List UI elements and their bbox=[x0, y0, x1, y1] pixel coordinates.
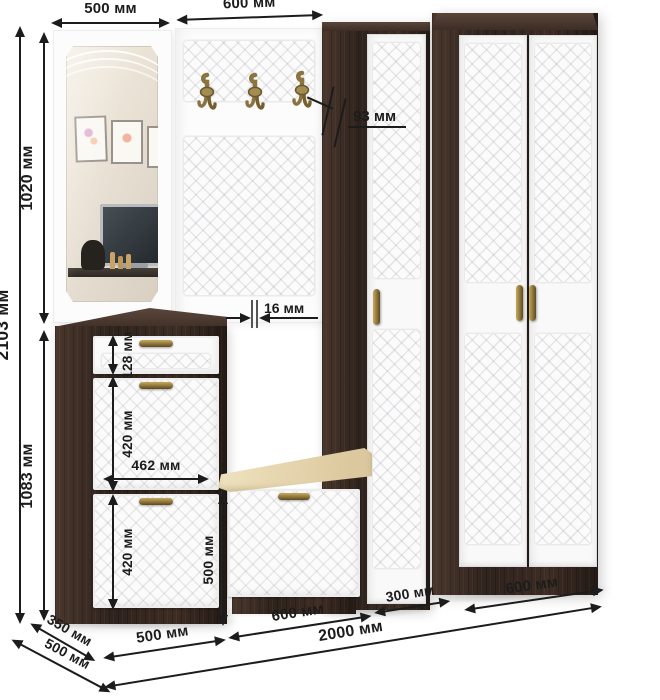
dimension-arrow bbox=[107, 495, 119, 609]
dimension-arrow bbox=[38, 331, 50, 620]
bench-height-dimension: 500 мм bbox=[217, 494, 229, 625]
cabinet-section-height-dimension: 1083 мм bbox=[38, 331, 50, 620]
drawer-handle bbox=[139, 340, 173, 347]
arrowhead-right bbox=[240, 313, 251, 323]
dimension-arrow bbox=[14, 27, 26, 623]
door-handle bbox=[516, 285, 523, 321]
double-wardrobe-top bbox=[432, 13, 598, 30]
dimension-label: 1083 мм bbox=[19, 443, 37, 508]
total-height-dimension: 2103 мм bbox=[14, 27, 26, 623]
dimension-label: 93 мм bbox=[353, 108, 396, 125]
dimension-arrow bbox=[177, 9, 322, 26]
dimension-label: 16 мм bbox=[264, 300, 304, 316]
mirror-sheen bbox=[66, 46, 158, 302]
flap-width-dimension: 462 мм bbox=[104, 458, 208, 485]
flap-handle bbox=[139, 498, 173, 505]
mirror-width-dimension: 500 мм bbox=[52, 1, 169, 29]
dimension-label: 420 мм bbox=[120, 528, 135, 575]
dimension-line bbox=[268, 317, 318, 319]
dimension-arrow bbox=[38, 33, 50, 323]
mirror bbox=[66, 46, 158, 302]
dimension-label: 2103 мм bbox=[0, 289, 13, 360]
drawer-height-dimension: 128 мм bbox=[107, 336, 119, 374]
door-handle bbox=[373, 289, 380, 325]
mirror-panel bbox=[53, 30, 172, 323]
door-quilt-panel bbox=[464, 333, 522, 545]
edge-hairline bbox=[256, 300, 258, 328]
bench-flap bbox=[228, 489, 360, 597]
flap-handle bbox=[139, 382, 173, 389]
double-wardrobe bbox=[432, 13, 598, 595]
hook-panel bbox=[175, 28, 323, 323]
leader-underline bbox=[348, 126, 406, 128]
dimension-arrow bbox=[217, 494, 229, 625]
dimension-label: 1020 мм bbox=[19, 145, 37, 210]
dimension-label: 420 мм bbox=[120, 410, 135, 457]
flap-handle bbox=[278, 493, 310, 500]
coat-hook bbox=[197, 72, 217, 122]
door-quilt-panel bbox=[464, 43, 522, 283]
dimension-arrow bbox=[104, 473, 208, 485]
bench bbox=[218, 446, 372, 616]
door-handle bbox=[529, 285, 536, 321]
dimension-label: 500 мм bbox=[84, 1, 137, 17]
hook-panel-lower-quilt bbox=[183, 136, 315, 296]
coat-hook bbox=[245, 72, 265, 122]
narrow-wardrobe-top bbox=[322, 22, 430, 31]
door-quilt-panel bbox=[534, 43, 592, 283]
wardrobe-door-right bbox=[529, 35, 597, 567]
dimension-arrow bbox=[52, 17, 169, 29]
coat-hook bbox=[292, 70, 312, 120]
furniture-dimension-diagram: 500 мм 600 мм 2103 мм 1020 мм 1083 мм 93… bbox=[0, 0, 660, 700]
dimension-label: 128 мм bbox=[120, 331, 135, 378]
door-quilt-panel bbox=[534, 333, 592, 545]
bench-cushion bbox=[218, 448, 372, 492]
dimension-arrow bbox=[107, 336, 119, 374]
dimension-label: 462 мм bbox=[131, 458, 180, 473]
lower-flap-height-dimension: 420 мм bbox=[107, 495, 119, 609]
hook-panel-width-dimension: 600 мм bbox=[177, 0, 323, 26]
dimension-label: 500 мм bbox=[200, 535, 216, 584]
door-quilt-panel bbox=[372, 329, 421, 569]
double-wardrobe-doors bbox=[459, 35, 597, 567]
arrowhead-left bbox=[259, 313, 270, 323]
mirror-section-height-dimension: 1020 мм bbox=[38, 33, 50, 323]
edge-hairline bbox=[251, 300, 253, 328]
door-quilt-panel bbox=[372, 42, 421, 279]
